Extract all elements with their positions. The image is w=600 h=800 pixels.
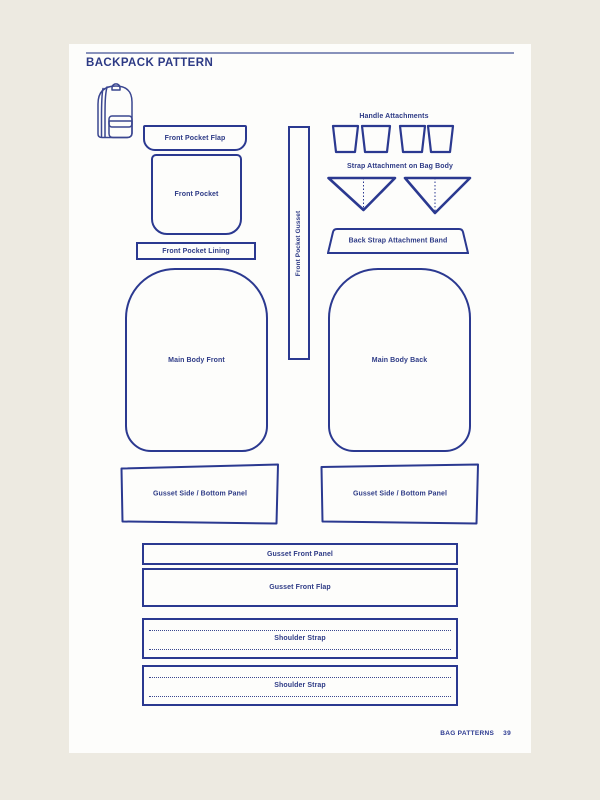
piece-label: Front Pocket [175,191,219,198]
piece-label: Front Pocket Gusset [296,210,303,275]
piece-gusset-front-panel: Gusset Front Panel [142,543,458,565]
stitch-line [149,696,451,697]
page-footer: BAG PATTERNS 39 [440,730,511,737]
piece-front-pocket: Front Pocket [151,154,242,235]
piece-gusset-side-bottom-panel-right: Gusset Side / Bottom Panel [320,462,480,526]
piece-label: Main Body Back [372,357,427,364]
piece-label: Front Pocket Flap [165,135,226,142]
piece-label: Gusset Front Flap [269,584,331,591]
piece-front-pocket-gusset: Front Pocket Gusset [288,126,310,360]
stitch-line [149,649,451,650]
handle-attachment-pieces [331,124,457,154]
strap-attachment-pieces [327,176,473,217]
piece-label: Shoulder Strap [274,682,326,689]
piece-label: Gusset Side / Bottom Panel [320,491,480,498]
piece-shoulder-strap-2: Shoulder Strap [142,665,458,706]
stitch-line [149,677,451,678]
piece-label: Gusset Side / Bottom Panel [120,491,280,498]
piece-main-body-front: Main Body Front [125,268,268,452]
piece-label: Back Strap Attachment Band [327,238,469,245]
piece-label: Main Body Front [168,357,225,364]
piece-gusset-side-bottom-panel-left: Gusset Side / Bottom Panel [120,462,280,526]
section-label-strap-attachment: Strap Attachment on Bag Body [327,163,473,170]
piece-back-strap-attachment-band: Back Strap Attachment Band [327,227,469,255]
stitch-line [149,630,451,631]
piece-front-pocket-lining: Front Pocket Lining [136,242,256,260]
piece-label: Gusset Front Panel [267,551,333,558]
page-title: BACKPACK PATTERN [86,57,213,69]
piece-label: Shoulder Strap [274,635,326,642]
piece-gusset-front-flap: Gusset Front Flap [142,568,458,607]
piece-shoulder-strap-1: Shoulder Strap [142,618,458,659]
piece-label: Front Pocket Lining [162,248,230,255]
piece-main-body-back: Main Body Back [328,268,471,452]
header-rule [86,52,514,54]
page-number: 39 [503,730,511,737]
footer-label: BAG PATTERNS [440,730,494,737]
section-label-handle-attachments: Handle Attachments [331,113,457,120]
pattern-page: BACKPACK PATTERN Front Pocket Flap Front… [69,44,531,753]
piece-front-pocket-flap: Front Pocket Flap [143,125,247,151]
backpack-icon [89,80,143,140]
